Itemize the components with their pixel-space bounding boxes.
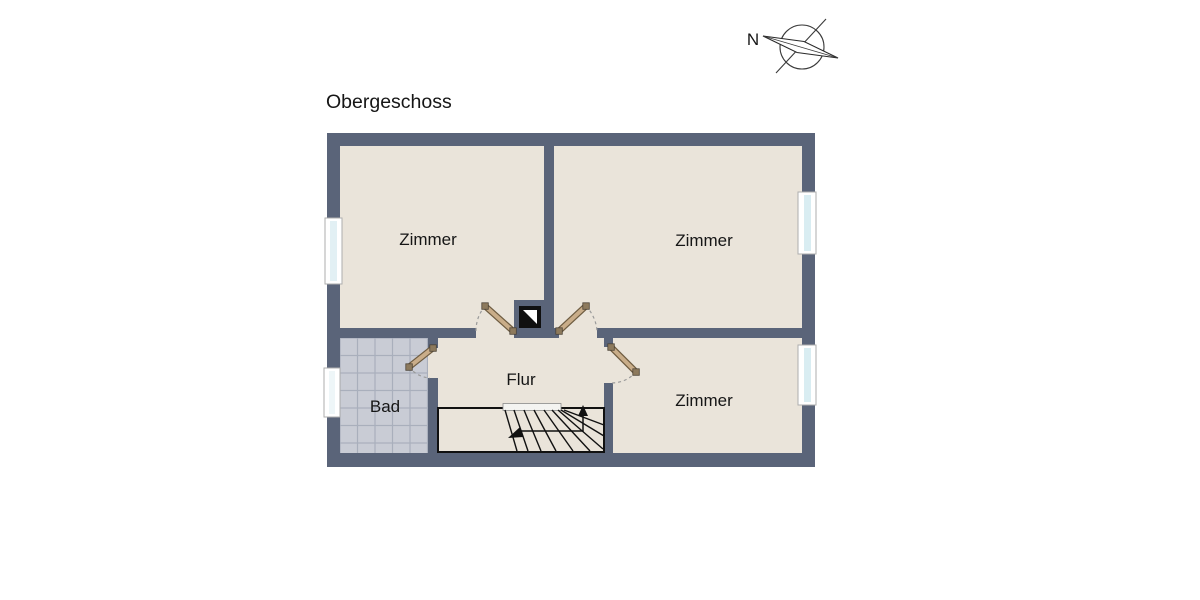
floor-title: Obergeschoss [326, 91, 452, 113]
wall-mid-left-segment [340, 328, 476, 338]
floor-plan-canvas: Obergeschoss N [0, 0, 1200, 600]
compass-needle-axis [763, 36, 838, 58]
wall-outer-top [327, 133, 815, 146]
wall-outer-bottom [327, 453, 815, 467]
wall-outer-right [802, 133, 815, 467]
window-bad [324, 368, 340, 417]
shaft-symbol [514, 300, 546, 333]
window-upper-left-room [325, 218, 342, 284]
compass-rose-icon [763, 19, 838, 73]
room-label-bad: Bad [370, 397, 400, 416]
stair-landing-edge [503, 404, 561, 411]
window-lower-right-room [798, 345, 816, 405]
room-label-zimmer-top-left: Zimmer [399, 230, 457, 249]
room-bad-floor [340, 338, 428, 453]
room-label-flur: Flur [506, 370, 536, 389]
north-label: N [747, 30, 759, 49]
room-label-zimmer-bottom-right: Zimmer [675, 391, 733, 410]
wall-mid-right-segment [597, 328, 802, 338]
wall-lowerright-segment [604, 383, 613, 453]
room-label-zimmer-top-right: Zimmer [675, 231, 733, 250]
window-upper-right-room [798, 192, 816, 254]
wall-bad-lower-segment [428, 378, 438, 453]
